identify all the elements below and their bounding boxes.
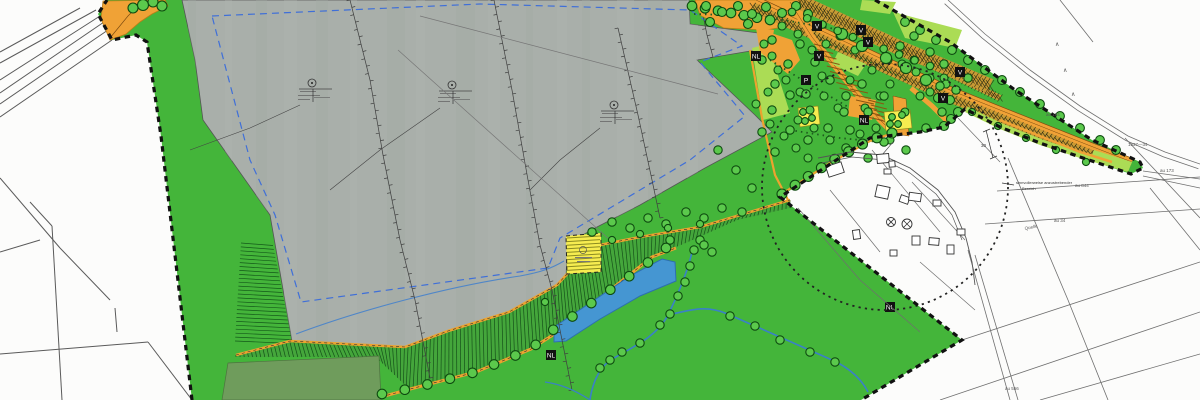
- svg-text:P: P: [804, 77, 808, 84]
- svg-text:1537—34: 1537—34: [1128, 142, 1148, 147]
- svg-text:V: V: [815, 23, 820, 30]
- svg-text:∧: ∧: [1063, 68, 1067, 74]
- svg-text:V: V: [866, 39, 871, 46]
- svg-text:au 34: au 34: [1054, 218, 1066, 223]
- svg-text:sinnvollerweise anzustrebender: sinnvollerweise anzustrebender: [1016, 180, 1073, 185]
- svg-text:NL: NL: [752, 53, 761, 60]
- svg-text:NL: NL: [860, 117, 869, 124]
- svg-text:au 134: au 134: [1046, 112, 1060, 117]
- svg-text:∧: ∧: [1055, 42, 1059, 48]
- svg-text:au 556: au 556: [1005, 386, 1019, 391]
- svg-text:NL: NL: [547, 352, 556, 359]
- svg-text:V: V: [859, 27, 864, 34]
- svg-text:V: V: [941, 95, 946, 102]
- svg-text:∧: ∧: [1071, 92, 1075, 98]
- svg-text:au 844: au 844: [1075, 183, 1089, 188]
- svg-text:V: V: [817, 53, 822, 60]
- svg-text:NL: NL: [886, 304, 895, 311]
- svg-text:Bereich: Bereich: [1022, 186, 1036, 191]
- svg-text:V: V: [958, 69, 963, 76]
- svg-text:30: 30: [981, 143, 987, 148]
- svg-text:au 173: au 173: [1160, 168, 1174, 173]
